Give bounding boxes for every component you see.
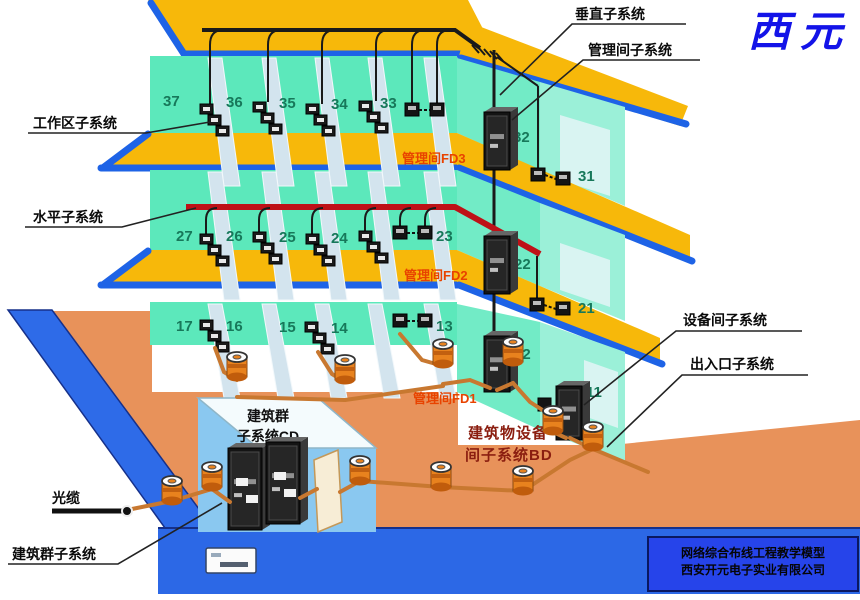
bd-label-line2: 间子系统BD <box>465 446 553 464</box>
rack-panel <box>231 452 259 526</box>
rack-panel <box>487 240 507 290</box>
rack-side <box>510 231 518 294</box>
floor3-back-wall <box>150 56 457 133</box>
work-area-subsystem-label: 工作区子系统 <box>33 115 117 131</box>
spool-hub <box>509 340 517 344</box>
device-face <box>421 229 429 233</box>
outlet-face <box>316 336 323 340</box>
room-27: 27 <box>176 228 193 245</box>
optical-cable-dot <box>122 506 132 516</box>
room-35: 35 <box>279 95 296 112</box>
entrance-door-panel <box>314 450 342 532</box>
rack-unit <box>490 144 498 148</box>
rack-side <box>300 437 308 524</box>
rack-unit <box>490 134 504 139</box>
diagram-canvas: 网络综合布线工程教学模型 西安开元电子实业有限公司 <box>0 0 860 600</box>
rack-label-plate <box>274 472 286 480</box>
outlet-face <box>370 245 377 249</box>
fd2-label: 管理间FD2 <box>404 268 468 283</box>
outlet-face <box>211 248 218 252</box>
bd-label-line1: 建筑物设备 <box>468 424 548 442</box>
outlet-face <box>219 345 226 349</box>
spool-bottom <box>513 487 533 496</box>
spool-bottom <box>350 477 370 486</box>
rack-panel <box>269 446 297 520</box>
cable-spool <box>503 337 523 367</box>
cable-spool <box>583 422 603 452</box>
equipment-room-subsystem-label: 设备间子系统 <box>683 312 767 328</box>
device-face <box>533 301 541 305</box>
spool-stripe <box>431 474 451 478</box>
spool-bottom <box>583 443 603 452</box>
optical-cable-label: 光缆 <box>51 490 80 506</box>
cable-spool <box>433 339 453 369</box>
outlet-face <box>256 105 263 109</box>
outlet-face <box>219 259 226 263</box>
optical-cable-callout: 光缆 <box>51 490 132 516</box>
vertical-subsystem-label: 垂直子系统 <box>575 6 645 22</box>
spool-hub <box>589 425 597 429</box>
room-36: 36 <box>226 94 243 111</box>
campus-subsystem-label: 建筑群子系统 <box>12 546 96 562</box>
spool-bottom <box>431 483 451 492</box>
room-24: 24 <box>331 230 348 247</box>
device-face <box>396 229 404 233</box>
spool-stripe <box>335 367 355 371</box>
outlet-face <box>325 259 332 263</box>
spool-bottom <box>335 376 355 385</box>
rack-unit <box>272 487 280 491</box>
cd-server-racks <box>228 437 308 530</box>
spool-hub <box>356 459 364 463</box>
spool-bottom <box>433 360 453 369</box>
spool-stripe <box>583 434 603 438</box>
device-face <box>433 106 441 110</box>
spool-hub <box>341 358 349 362</box>
room-15: 15 <box>279 319 296 336</box>
room-14: 14 <box>331 320 348 337</box>
fd2-rack <box>484 231 518 294</box>
room-23: 23 <box>436 228 453 245</box>
outlet-face <box>272 257 279 261</box>
cable-spool <box>202 462 222 492</box>
device-face <box>408 106 416 110</box>
outlet-face <box>378 126 385 130</box>
rack-unit <box>490 268 498 272</box>
outlet-face <box>370 115 377 119</box>
outlet-face <box>211 334 218 338</box>
cable-spool <box>543 406 563 436</box>
spool-hub <box>168 479 176 483</box>
floor1-back-wall <box>150 302 457 345</box>
room-31: 31 <box>578 168 595 185</box>
outlet-face <box>256 235 263 239</box>
room-13: 13 <box>436 318 453 335</box>
device-face <box>421 317 429 321</box>
rack-unit <box>234 493 242 497</box>
outlet-face <box>272 127 279 131</box>
fd3-label: 管理间FD3 <box>402 151 466 166</box>
outlet-face <box>325 129 332 133</box>
device-face <box>534 171 542 175</box>
spool-stripe <box>433 351 453 355</box>
cable-spool <box>431 462 451 492</box>
outlet-face <box>264 246 271 250</box>
device-face <box>559 305 567 309</box>
outlet-face <box>317 248 324 252</box>
outlet-face <box>203 323 210 327</box>
horizontal-subsystem-label: 水平子系统 <box>33 209 103 225</box>
device-face <box>559 175 567 179</box>
outlet-face <box>203 107 210 111</box>
cd-rack-2 <box>266 437 308 524</box>
outlet-face <box>309 107 316 111</box>
cable-spool <box>227 352 247 382</box>
brand-logo: 西元 <box>748 8 852 55</box>
spool-bottom <box>503 358 523 367</box>
outlet-face <box>317 118 324 122</box>
fd3-rack <box>484 107 518 170</box>
outlet-face <box>308 325 315 329</box>
fd1-label: 管理间FD1 <box>413 391 477 406</box>
cabling-system-diagram: 网络综合布线工程教学模型 西安开元电子实业有限公司 <box>0 0 860 600</box>
rack-unit <box>562 407 576 412</box>
room-33: 33 <box>380 95 397 112</box>
cd-label-line1: 建筑群 <box>247 408 289 424</box>
cable-spool <box>335 355 355 385</box>
room-37: 37 <box>163 93 180 110</box>
spool-hub <box>437 465 445 469</box>
room-34: 34 <box>331 96 348 113</box>
outlet-face <box>264 116 271 120</box>
mgmt-room-subsystem-label: 管理间子系统 <box>588 42 672 58</box>
rack-unit <box>490 367 498 371</box>
spool-bottom <box>227 373 247 382</box>
spool-hub <box>519 469 527 473</box>
entrance-subsystem-label: 出入口子系统 <box>690 356 774 372</box>
spool-stripe <box>202 474 222 478</box>
outlet-face <box>219 129 226 133</box>
spool-stripe <box>162 488 182 492</box>
spool-hub <box>549 409 557 413</box>
name-plate <box>206 548 256 573</box>
footer-line1: 网络综合布线工程教学模型 <box>681 545 825 560</box>
spool-bottom <box>543 427 563 436</box>
room-26: 26 <box>226 228 243 245</box>
outlet-face <box>378 256 385 260</box>
outlet-face <box>309 237 316 241</box>
outlet-face <box>362 104 369 108</box>
spool-bottom <box>162 497 182 506</box>
device-face <box>396 317 404 321</box>
outlet-face <box>211 118 218 122</box>
cd-rack-1 <box>228 443 270 530</box>
cable-spool <box>162 476 182 506</box>
spool-stripe <box>227 364 247 368</box>
footer-line2: 西安开元电子实业有限公司 <box>681 562 825 577</box>
cable-spool <box>513 466 533 496</box>
outlet-face <box>362 234 369 238</box>
spool-stripe <box>513 478 533 482</box>
room-25: 25 <box>279 229 296 246</box>
cable-spool <box>350 456 370 486</box>
spool-stripe <box>503 349 523 353</box>
rack-label-plate <box>236 478 248 486</box>
room-16: 16 <box>226 318 243 335</box>
rack-label-plate <box>284 489 296 497</box>
rack-panel <box>487 116 507 166</box>
spool-hub <box>439 342 447 346</box>
spool-hub <box>233 355 241 359</box>
spool-hub <box>208 465 216 469</box>
rack-unit <box>490 258 504 263</box>
rack-unit <box>490 357 504 362</box>
spool-bottom <box>202 483 222 492</box>
outlet-face <box>203 237 210 241</box>
spool-stripe <box>543 418 563 422</box>
outlet-face <box>324 347 331 351</box>
spool-stripe <box>350 468 370 472</box>
room-21: 21 <box>578 300 595 317</box>
rack-label-plate <box>246 495 258 503</box>
room-17: 17 <box>176 318 193 335</box>
